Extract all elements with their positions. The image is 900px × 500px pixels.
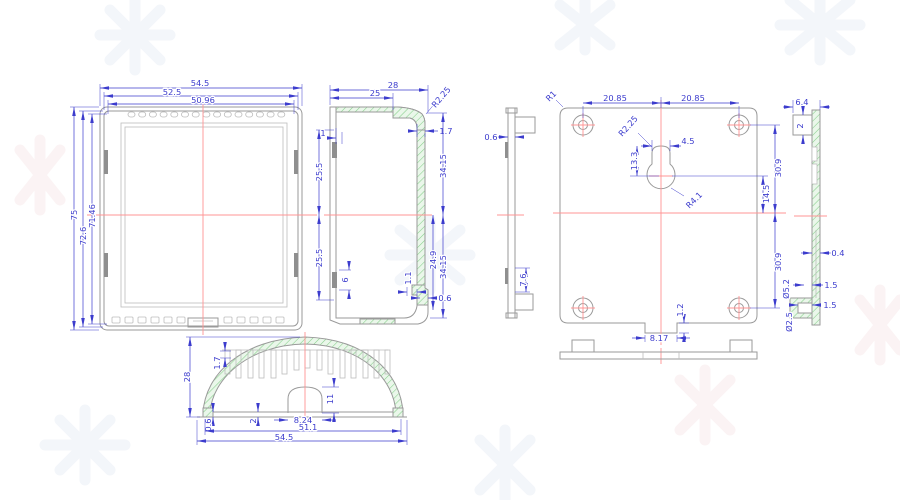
dim-label: 54.5 bbox=[191, 78, 209, 88]
dim-label: Ø2.5 bbox=[784, 312, 794, 332]
dim-label: 51.1 bbox=[299, 422, 317, 432]
dim-label: 28 bbox=[182, 372, 192, 383]
dim-label: 72.6 bbox=[78, 227, 88, 245]
dim-label: 13.3 bbox=[629, 152, 639, 170]
dim-label: 24.9 bbox=[428, 251, 438, 269]
dim-label: 2 bbox=[248, 418, 258, 423]
front-outline bbox=[100, 107, 302, 330]
dim-label: 25.5 bbox=[314, 249, 324, 267]
front-view: 54.5 52.5 50.96 75 72.6 71.46 bbox=[69, 78, 317, 335]
dim-label: 2 bbox=[795, 123, 805, 128]
dim-label: 0.6 bbox=[438, 293, 451, 303]
dim-label: R4.1 bbox=[684, 190, 704, 210]
back-centerlines bbox=[553, 100, 786, 364]
cad-drawing-page: 54.5 52.5 50.96 75 72.6 71.46 bbox=[0, 0, 900, 500]
cad-canvas: 54.5 52.5 50.96 75 72.6 71.46 bbox=[0, 0, 900, 500]
dim-label: 52.5 bbox=[163, 87, 181, 97]
dim-label: R2.25 bbox=[616, 114, 640, 139]
dim-label: 6.4 bbox=[795, 97, 808, 107]
dim-label: 1.2 bbox=[675, 303, 685, 316]
dim-label: 1.7 bbox=[439, 126, 452, 136]
dim-label: 20.85 bbox=[603, 93, 627, 103]
dim-label: 0.6 bbox=[484, 132, 497, 142]
dim-label: R1 bbox=[544, 89, 559, 104]
dim-label: 30.9 bbox=[773, 253, 783, 271]
dim-label: 7.6 bbox=[518, 273, 528, 286]
dim-label: 11 bbox=[325, 394, 335, 405]
dim-label: R2.25 bbox=[429, 84, 452, 109]
dim-label: 1.5 bbox=[824, 280, 837, 290]
dim-label: 6 bbox=[340, 277, 350, 282]
watermark-pattern bbox=[20, 0, 900, 500]
dim-label: 25 bbox=[370, 88, 381, 98]
dim-label: 0.4 bbox=[831, 248, 844, 258]
side-slot-upper bbox=[812, 147, 817, 161]
dim-label: Ø5.2 bbox=[781, 279, 791, 299]
section-cut-hatch bbox=[336, 107, 428, 324]
dome-wall-hatch bbox=[203, 337, 403, 413]
front-centerlines bbox=[87, 103, 317, 335]
back-plate-outline bbox=[560, 108, 757, 333]
back-view: 20.85 20.85 R1 R2.25 4.5 13.3 R4.1 14.5 … bbox=[544, 89, 786, 364]
dim-label: 71.46 bbox=[87, 204, 97, 228]
dim-label: 34.15 bbox=[438, 255, 448, 279]
dim-label: 20.85 bbox=[681, 93, 705, 103]
dim-label: 28 bbox=[388, 80, 399, 90]
dim-label: 14.5 bbox=[761, 185, 771, 203]
dim-label: 30.9 bbox=[773, 159, 783, 177]
dim-label: 1.1 bbox=[403, 271, 413, 284]
dim-label: 1 bbox=[320, 128, 325, 138]
side-slot-lower bbox=[812, 164, 817, 184]
back-side-view: 0.6 7.6 bbox=[484, 108, 535, 318]
dim-label: 0.6 bbox=[203, 418, 213, 431]
dim-label: 1.7 bbox=[212, 356, 222, 369]
side-view: 6.4 2 0.4 1.5 1.5 Ø5.2 Ø2.5 bbox=[781, 97, 845, 332]
dim-label: 8.17 bbox=[650, 333, 668, 343]
front-side-clips bbox=[104, 150, 298, 277]
front-top-vents bbox=[128, 112, 285, 117]
dim-label: 50.96 bbox=[191, 95, 215, 105]
dim-label: 34.15 bbox=[438, 154, 448, 178]
dim-label: 75 bbox=[69, 210, 79, 221]
dim-label: 54.5 bbox=[275, 432, 293, 442]
dim-label: 25.5 bbox=[314, 163, 324, 181]
dim-label: 4.5 bbox=[681, 136, 694, 146]
bottom-view: 28 1.7 11 8.24 0.6 2 51.1 54.5 bbox=[182, 332, 407, 445]
dim-label: 1.5 bbox=[823, 300, 836, 310]
